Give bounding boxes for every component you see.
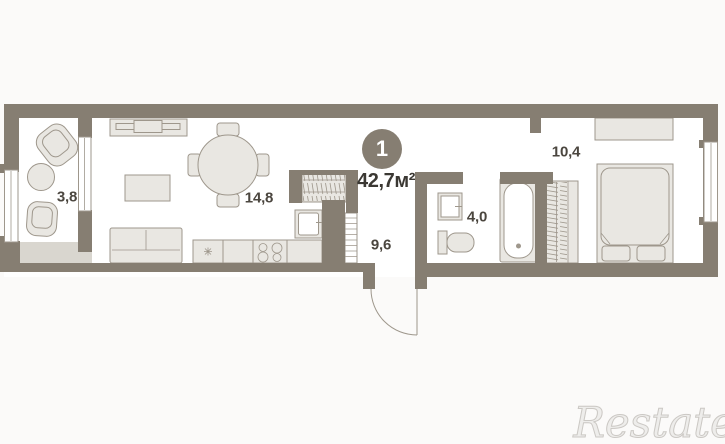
coffee-table-icon — [125, 175, 170, 201]
chair-icon — [217, 123, 239, 136]
entry-door-jamb-left — [363, 263, 375, 289]
wardrobe-icon — [545, 181, 578, 263]
wall-bottom-right — [417, 263, 718, 277]
sofa-icon — [110, 228, 182, 263]
hall-closet-icon — [302, 172, 346, 202]
wall-balcony-partition-lower — [78, 210, 92, 254]
unit-number-badge: 1 — [362, 129, 402, 169]
pillow-icon — [637, 246, 665, 261]
balcony-table-icon — [28, 164, 55, 191]
washbasin-icon — [438, 193, 462, 220]
room-area-balcony: 3,8 — [57, 189, 77, 206]
room-area-bedroom: 10,4 — [552, 144, 580, 161]
balcony-parapet — [78, 252, 92, 263]
toilet-icon — [438, 231, 474, 254]
balcony-glazed-door — [79, 137, 92, 211]
floor-plan-drawing — [0, 0, 725, 444]
total-area-label: 42,7м² — [357, 171, 415, 191]
window-right — [704, 142, 718, 222]
tv-console-icon — [110, 119, 187, 136]
drain-icon — [516, 244, 521, 249]
kitchen-counter-icon — [287, 240, 322, 263]
unit-number: 1 — [376, 136, 388, 162]
floor-plan-image: 1 42,7м² 3,8 14,8 9,6 4,0 10,4 Restate — [0, 0, 725, 444]
entry-door — [371, 289, 417, 335]
bedroom-door-stub — [530, 118, 541, 133]
wall-bathroom-top-left — [415, 172, 463, 184]
pillow-icon — [602, 246, 630, 261]
room-area-hallway: 9,6 — [371, 237, 391, 254]
dresser-icon — [595, 118, 673, 140]
ladder-rack-icon — [345, 213, 357, 263]
wall-left-upper — [4, 104, 19, 172]
bed-icon — [597, 164, 673, 263]
chair-icon — [217, 194, 239, 207]
bathtub-icon — [500, 178, 537, 262]
room-area-bathroom: 4,0 — [467, 209, 487, 226]
wall-bottom-left — [0, 263, 373, 272]
closet-lintel — [289, 170, 358, 175]
watermark: Restate — [573, 402, 725, 444]
wall-kitchen-hall — [322, 200, 345, 263]
room-area-living: 14,8 — [245, 190, 273, 207]
wall-top — [8, 104, 718, 118]
door-swing-arc — [371, 289, 417, 335]
kitchen-counter-icon — [223, 240, 253, 263]
wall-bathroom-bedroom — [535, 172, 547, 263]
window-left — [5, 170, 19, 242]
sink-symbol-icon — [204, 248, 212, 256]
wall-hall-bathroom — [415, 172, 427, 289]
armchair-icon — [26, 201, 58, 237]
wall-balcony-partition-upper — [78, 110, 92, 138]
kitchen-sink-icon — [295, 210, 322, 238]
stove-icon — [253, 240, 287, 263]
